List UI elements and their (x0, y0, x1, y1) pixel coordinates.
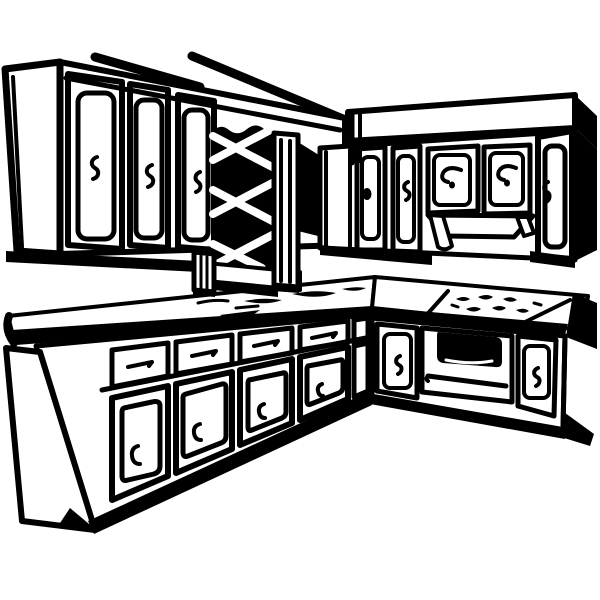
post (194, 252, 214, 292)
kitchen-clipart-illustration (0, 0, 600, 600)
pillar (274, 133, 298, 287)
upper-cabinets-right (320, 95, 597, 268)
oven (422, 328, 512, 402)
oven-handle-hook (427, 376, 429, 381)
ink-dash (452, 305, 458, 307)
cabinet-end-cap (575, 128, 597, 261)
kitchen-clipart-svg (0, 0, 600, 600)
corner-shadow (298, 142, 322, 237)
handle-dot (449, 182, 455, 189)
ink-dash (534, 303, 541, 305)
cabinet-end-cap (561, 410, 594, 446)
window-pillar (273, 133, 299, 293)
handle-dot (504, 180, 510, 187)
face-edge-line (563, 336, 565, 428)
door-knob (363, 188, 372, 200)
ink-dash (236, 306, 258, 308)
base-cabinets-right (368, 315, 594, 446)
base-cabinets-left (6, 315, 372, 534)
sill-post (193, 252, 215, 297)
